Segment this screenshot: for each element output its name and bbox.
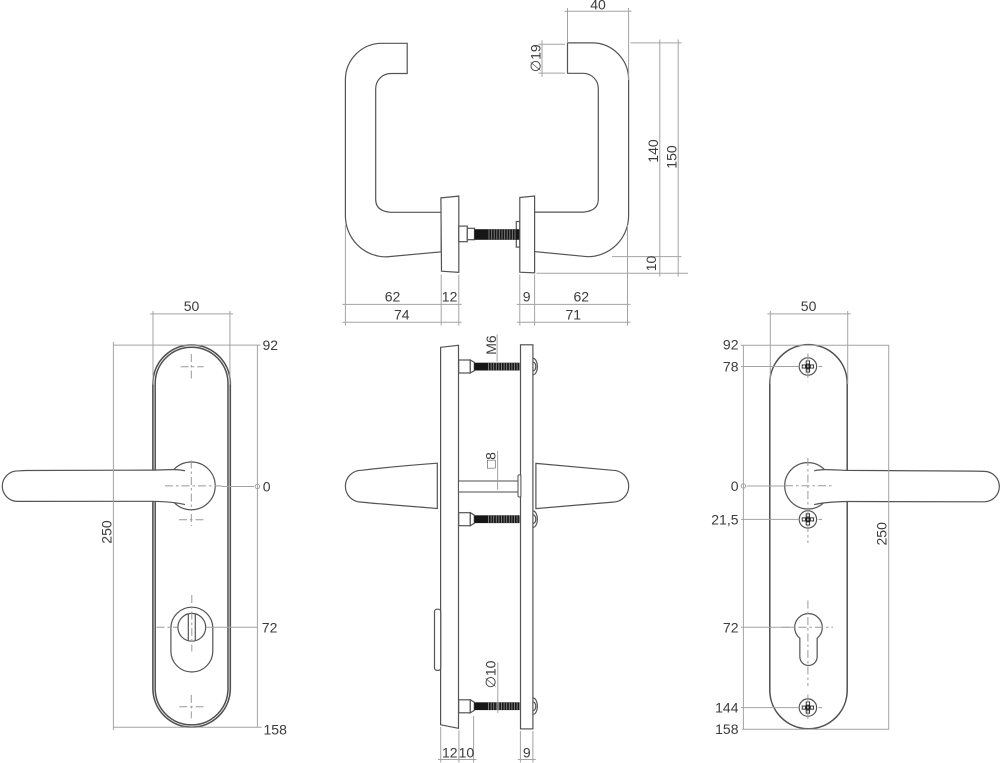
svg-text:10: 10: [643, 256, 659, 272]
svg-text:250: 250: [98, 520, 114, 544]
svg-text:140: 140: [645, 139, 661, 163]
svg-text:9: 9: [523, 288, 531, 304]
svg-text:M6: M6: [483, 335, 499, 355]
svg-text:50: 50: [184, 298, 200, 314]
svg-text:62: 62: [385, 288, 401, 304]
svg-text:150: 150: [664, 145, 680, 169]
svg-text:10: 10: [459, 744, 475, 760]
svg-text:□8: □8: [482, 452, 498, 468]
svg-text:62: 62: [574, 288, 590, 304]
svg-text:0: 0: [731, 478, 739, 494]
svg-text:92: 92: [263, 337, 279, 353]
svg-text:78: 78: [723, 359, 739, 375]
svg-text:12: 12: [442, 744, 458, 760]
svg-text:74: 74: [394, 306, 410, 322]
svg-text:158: 158: [264, 721, 288, 737]
svg-text:9: 9: [523, 744, 531, 760]
svg-text:71: 71: [566, 306, 582, 322]
svg-text:0: 0: [263, 479, 271, 495]
svg-text:50: 50: [801, 298, 817, 314]
svg-text:∅19: ∅19: [528, 44, 544, 72]
svg-text:72: 72: [723, 619, 739, 635]
svg-text:250: 250: [873, 522, 889, 546]
svg-text:12: 12: [442, 288, 458, 304]
svg-text:72: 72: [262, 619, 278, 635]
svg-text:21,5: 21,5: [711, 511, 738, 527]
svg-text:∅10: ∅10: [482, 660, 498, 688]
svg-text:144: 144: [715, 700, 739, 716]
svg-text:40: 40: [590, 0, 606, 13]
svg-text:158: 158: [715, 721, 739, 737]
svg-text:92: 92: [723, 336, 739, 352]
